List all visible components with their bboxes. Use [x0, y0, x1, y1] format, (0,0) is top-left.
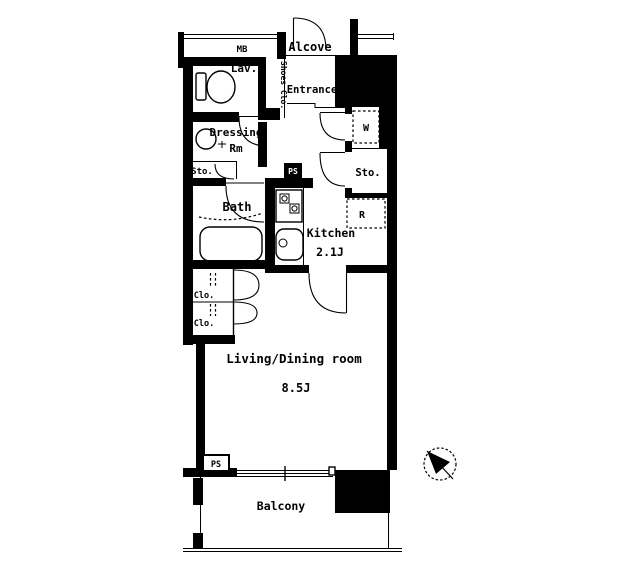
washer-space-label: W [363, 123, 370, 134]
storage-right-door-arc [320, 153, 345, 186]
living-dining-label: Living/Dining room [226, 351, 362, 366]
pipe-space-bottom-label: PS [211, 460, 221, 470]
floor-plan-page: MB Alcove Lav. Shoes Clo. Entrance Dress… [0, 0, 640, 569]
storage-right-label: Sto. [355, 167, 380, 179]
kitchen-door-arc [309, 273, 346, 313]
living-window [237, 466, 335, 481]
kitchen-sink-icon [276, 229, 303, 260]
pipe-space-top-label: PS [288, 167, 298, 176]
kitchen-living-wall [275, 265, 391, 313]
closet-upper-door-arc [234, 270, 260, 300]
closet-lower-label: Clo. [194, 319, 214, 329]
compass-icon [424, 448, 456, 480]
dressing-room-label-1: Dressing [210, 126, 263, 139]
alcove-label: Alcove [288, 40, 331, 54]
washer-door-arc [320, 113, 345, 140]
kitchen-size-label: 2.1J [316, 245, 344, 259]
refrigerator-space-label: R [359, 210, 366, 221]
storage-left-door-arc [215, 164, 234, 179]
closet-lower-door-arc [234, 302, 258, 324]
lavatory-label: Lav. [231, 62, 258, 75]
lavatory-area [193, 71, 239, 122]
room-labels: MB Alcove Lav. Shoes Clo. Entrance Dress… [191, 40, 380, 513]
balcony-black-block [335, 470, 390, 513]
stove-icon [276, 190, 302, 222]
dressing-room-label-2: Rm [229, 142, 243, 155]
floor-plan-drawing: MB Alcove Lav. Shoes Clo. Entrance Dress… [0, 0, 640, 569]
kitchen-label: Kitchen [307, 226, 356, 240]
storage-left-label: Sto. [191, 167, 213, 177]
bathtub-icon [200, 227, 262, 261]
kitchen-area [265, 178, 304, 273]
bath-label: Bath [223, 200, 252, 214]
closets-area [183, 260, 275, 344]
balcony-label: Balcony [257, 499, 306, 513]
refrigerator-space-box [347, 199, 385, 228]
closet-upper-label: Clo. [194, 291, 214, 301]
entrance-label: Entrance [287, 84, 338, 96]
living-dining-size-label: 8.5J [282, 381, 311, 395]
meter-box-label: MB [237, 45, 248, 55]
toilet-icon [196, 71, 235, 103]
